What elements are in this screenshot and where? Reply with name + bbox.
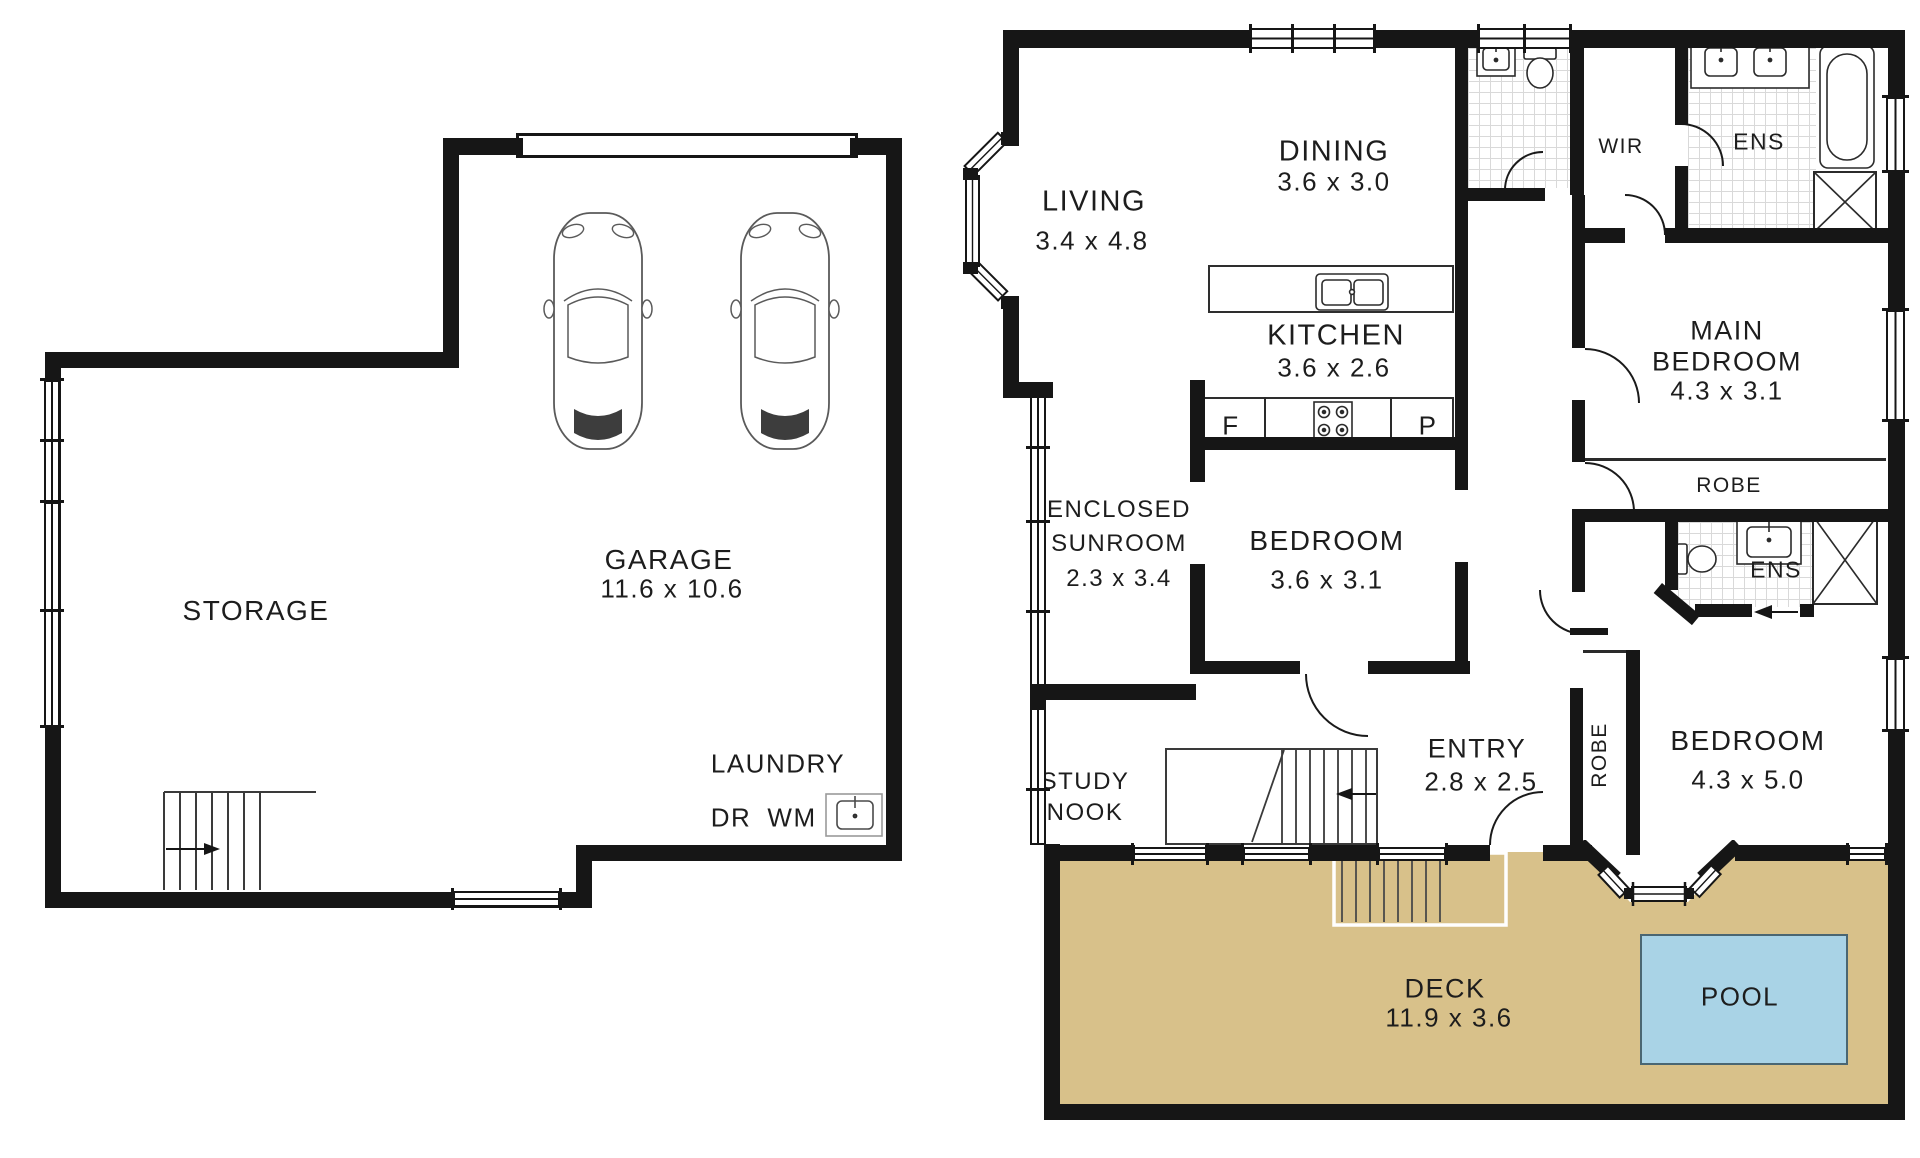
wall-segment: [1675, 48, 1688, 125]
dining-dims: 3.6 x 3.0: [1277, 167, 1390, 198]
storage-label: STORAGE: [183, 595, 330, 627]
laundry-tub-icon: [826, 794, 882, 836]
wall-segment: [1446, 845, 1490, 861]
wall-segment: [1800, 604, 1814, 617]
storage-stairs: [164, 792, 316, 890]
wall-segment: [1572, 515, 1585, 592]
garage-door: [516, 133, 858, 158]
main-bedroom-dims: 4.3 x 3.1: [1670, 376, 1783, 407]
bedroom2-label: BEDROOM: [1670, 725, 1825, 757]
study-nook-label-2: NOOK: [1047, 799, 1124, 827]
wall-segment: [1044, 684, 1196, 700]
window: [1886, 658, 1905, 732]
window-tick: [40, 439, 64, 442]
window: [1378, 847, 1446, 861]
window-tick: [1291, 24, 1294, 53]
dryer-label: DR: [711, 803, 752, 834]
garage-label: GARAGE: [605, 544, 734, 576]
robe-top-line: [1583, 650, 1626, 653]
window-tick: [1882, 419, 1909, 422]
wall-segment: [1003, 30, 1019, 146]
wall-segment: [1003, 30, 1905, 48]
window-tick: [1026, 610, 1050, 613]
window: [1133, 847, 1207, 861]
shower-icon: [1814, 172, 1876, 232]
window-tick: [1882, 170, 1909, 173]
window-tick: [1376, 843, 1379, 865]
ensuite2-label: ENS: [1750, 557, 1802, 584]
window-tick: [1882, 308, 1909, 311]
kitchen-label: KITCHEN: [1267, 320, 1405, 353]
window-tick: [559, 888, 562, 910]
laundry-label: LAUNDRY: [711, 749, 845, 780]
wall-segment: [1455, 48, 1468, 490]
wall-segment: [1044, 845, 1135, 861]
deck-label: DECK: [1404, 974, 1485, 1005]
robe-entry-label: ROBE: [1588, 722, 1612, 788]
wall-segment: [1310, 845, 1378, 861]
wall-segment: [1735, 845, 1850, 861]
wall-segment: [1455, 188, 1545, 201]
window-tick: [1445, 843, 1448, 865]
window-tick: [1026, 446, 1050, 449]
entry-label: ENTRY: [1428, 734, 1527, 765]
sunroom-label-2: SUNROOM: [1051, 530, 1187, 558]
car-icon: [731, 213, 839, 449]
window: [1886, 97, 1905, 173]
wall-segment: [1626, 650, 1640, 855]
wall-segment: [1695, 604, 1752, 617]
window-tick: [1131, 843, 1134, 865]
car-icon: [544, 213, 652, 449]
wall-segment: [1675, 166, 1688, 243]
window-tick: [1569, 24, 1572, 53]
washing-machine-label: WM: [767, 803, 816, 834]
window: [1030, 396, 1046, 686]
door-arc: [1585, 349, 1639, 403]
wall-segment: [1044, 1104, 1905, 1120]
wall-segment: [1190, 380, 1205, 482]
bedroom1-label: BEDROOM: [1249, 525, 1404, 557]
wall-segment: [1665, 522, 1678, 590]
wall-segment: [1570, 628, 1608, 635]
window-tick: [40, 609, 64, 612]
entry-dims: 2.8 x 2.5: [1424, 767, 1537, 798]
window-tick: [451, 888, 454, 910]
floorplan: STORAGE GARAGE 11.6 x 10.6 LAUNDRY DR WM…: [0, 0, 1920, 1158]
ensuite1-label: ENS: [1733, 129, 1785, 156]
living-dims: 3.4 x 4.8: [1035, 226, 1148, 257]
window-tick: [1846, 843, 1849, 865]
wall-segment: [443, 138, 459, 368]
window: [453, 891, 560, 907]
wall-segment: [1572, 228, 1625, 243]
wall-segment: [576, 845, 902, 861]
window-tick: [1026, 788, 1050, 791]
bathroom-floor-tiles: [1468, 48, 1570, 188]
garage-dims: 11.6 x 10.6: [600, 574, 743, 605]
window-tick: [1477, 24, 1480, 53]
wir-label: WIR: [1598, 135, 1643, 159]
wall-segment: [1665, 228, 1905, 243]
direction-arrow: [1754, 605, 1798, 619]
window-tick: [1882, 656, 1909, 659]
window-tick: [1333, 24, 1336, 53]
wall-segment: [1205, 845, 1243, 861]
direction-arrow: [166, 843, 220, 855]
wall-segment: [1572, 400, 1585, 462]
window-tick: [1373, 24, 1376, 53]
window-tick: [1882, 95, 1909, 98]
study-nook-label-1: STUDY: [1041, 768, 1130, 796]
living-label: LIVING: [1042, 186, 1146, 219]
bedroom2-dims: 4.3 x 5.0: [1691, 765, 1804, 796]
window-tick: [40, 725, 64, 728]
window-tick: [1241, 843, 1244, 865]
pool-label: POOL: [1701, 982, 1779, 1013]
window-tick: [1523, 24, 1526, 53]
door-arc: [1490, 792, 1543, 845]
sunroom-dims: 2.3 x 3.4: [1066, 565, 1172, 593]
window: [1243, 847, 1310, 861]
dining-label: DINING: [1279, 136, 1390, 169]
wall-segment: [1886, 845, 1905, 861]
window: [1886, 310, 1905, 422]
window-tick: [40, 378, 64, 381]
wall-segment: [1572, 195, 1585, 348]
kitchen-island: [1208, 265, 1454, 313]
deck-dims: 11.9 x 3.6: [1385, 1003, 1512, 1034]
wall-segment: [1543, 845, 1592, 861]
door-arc: [1585, 463, 1634, 512]
window: [44, 502, 60, 728]
wall-segment: [1570, 688, 1583, 855]
wall-segment: [1572, 509, 1888, 522]
robe-main-label: ROBE: [1696, 474, 1762, 498]
wall-segment: [1190, 661, 1300, 674]
internal-stairs: [1165, 748, 1378, 845]
bathtub-icon: [1820, 46, 1874, 168]
window: [1030, 708, 1046, 845]
window-tick: [1885, 843, 1888, 865]
wall-segment: [1888, 30, 1905, 1120]
door-arc: [1625, 195, 1665, 235]
wall-segment: [1570, 48, 1584, 195]
window-tick: [1882, 729, 1909, 732]
wall-segment: [886, 138, 902, 861]
wall-segment: [1455, 562, 1468, 674]
sunroom-label-1: ENCLOSED: [1047, 496, 1191, 524]
main-bedroom-label-2: BEDROOM: [1652, 347, 1802, 378]
bedroom1-dims: 3.6 x 3.1: [1270, 565, 1383, 596]
wall-segment: [1044, 844, 1060, 1120]
door-arc: [1306, 674, 1368, 736]
robe-front-line: [1585, 458, 1886, 461]
main-bedroom-label-1: MAIN: [1690, 316, 1764, 347]
window-tick: [1309, 843, 1312, 865]
wall-segment: [45, 352, 459, 368]
window-tick: [1249, 24, 1252, 53]
window: [1848, 847, 1886, 861]
window-tick: [40, 500, 64, 503]
kitchen-dims: 3.6 x 2.6: [1277, 353, 1390, 384]
window: [1250, 28, 1376, 49]
window-tick: [1206, 843, 1209, 865]
window-tick: [1026, 520, 1050, 523]
shower-icon: [1813, 516, 1877, 604]
living-bay-window: [955, 130, 1017, 310]
wall-segment: [1190, 564, 1205, 674]
wall-segment: [1190, 437, 1468, 450]
